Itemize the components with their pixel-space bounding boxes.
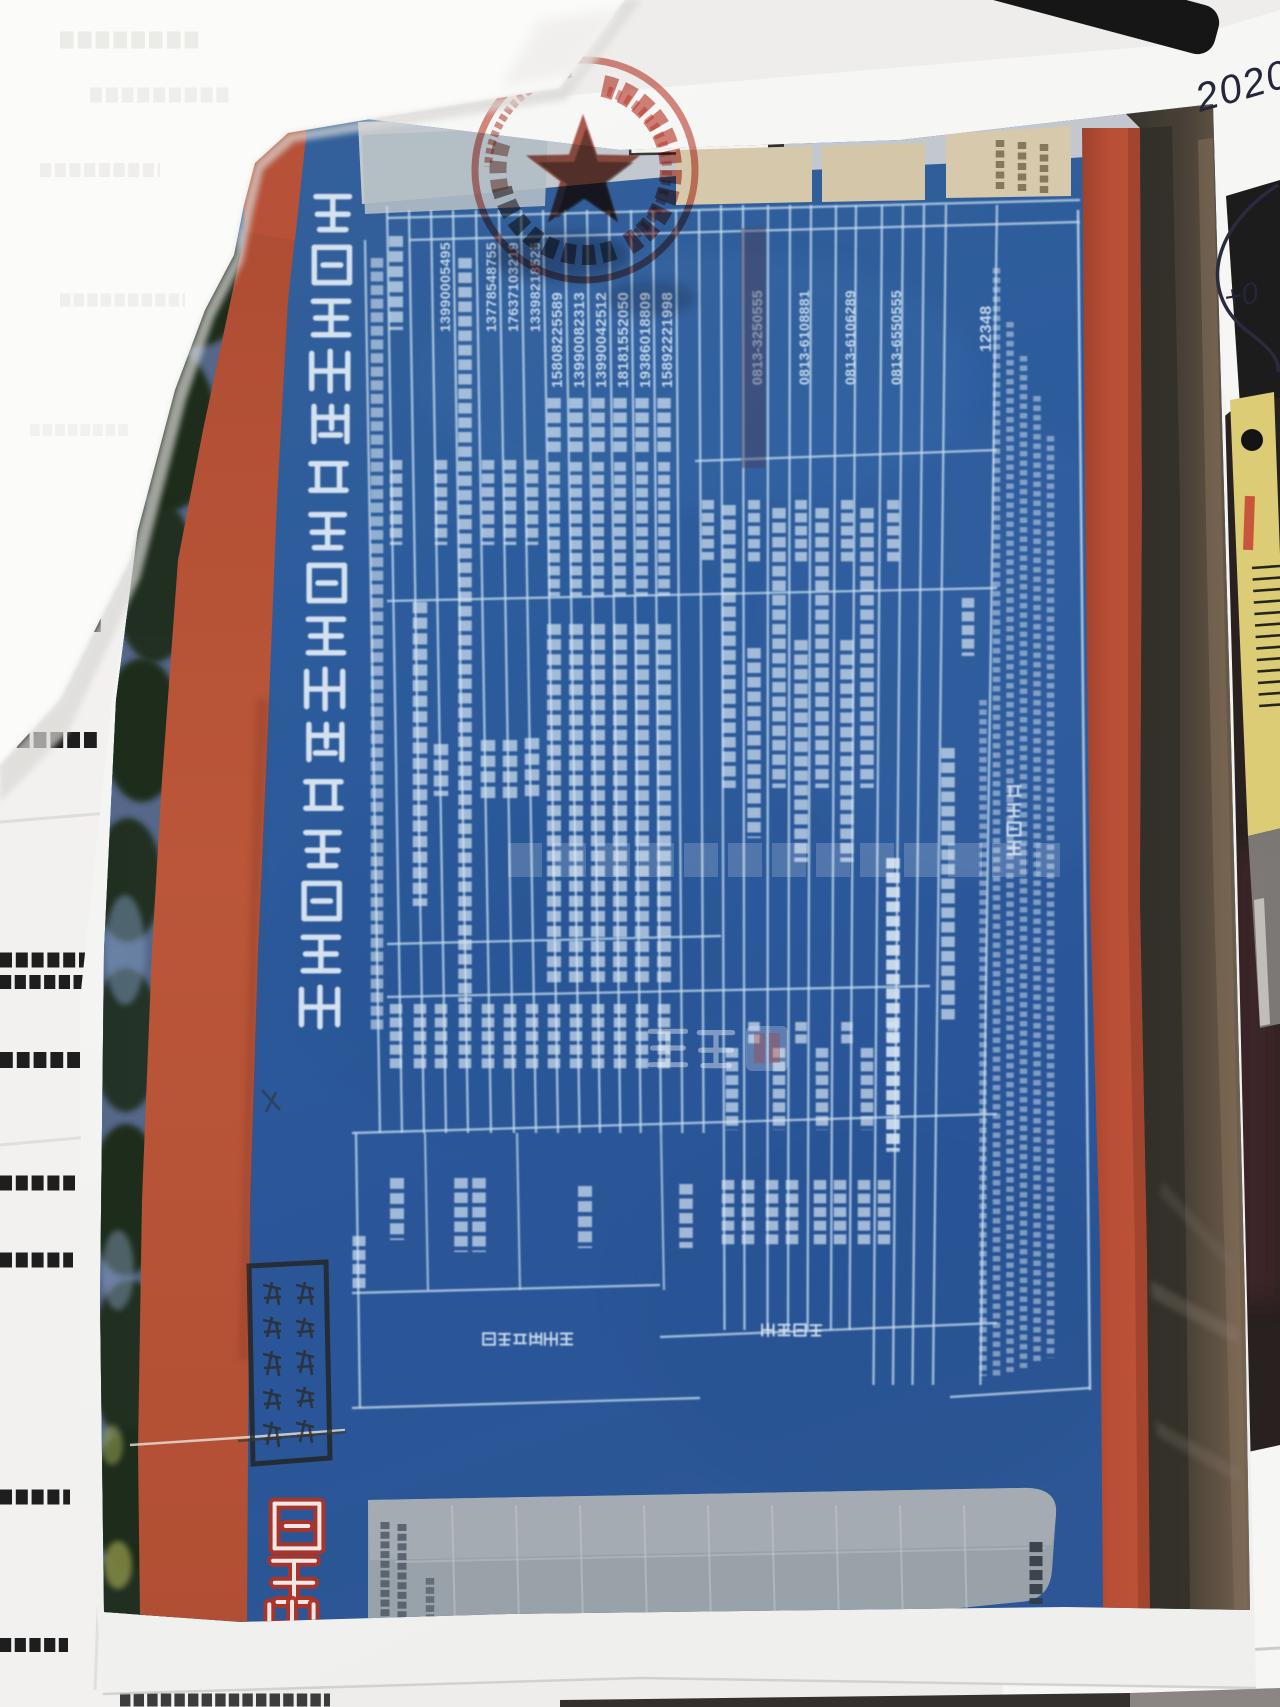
svg-text:0813-6108881: 0813-6108881	[796, 290, 812, 385]
svg-text:0813-6550555: 0813-6550555	[888, 290, 904, 385]
svg-text:13990082313: 13990082313	[571, 292, 588, 388]
svg-text:+0: +0	[1221, 276, 1261, 314]
svg-text:13990042512: 13990042512	[593, 292, 610, 388]
svg-text:15808225589: 15808225589	[549, 292, 566, 388]
svg-text:0813-6106289: 0813-6106289	[842, 290, 858, 385]
svg-text:12348: 12348	[978, 306, 995, 353]
svg-text:13990005495: 13990005495	[437, 242, 453, 332]
